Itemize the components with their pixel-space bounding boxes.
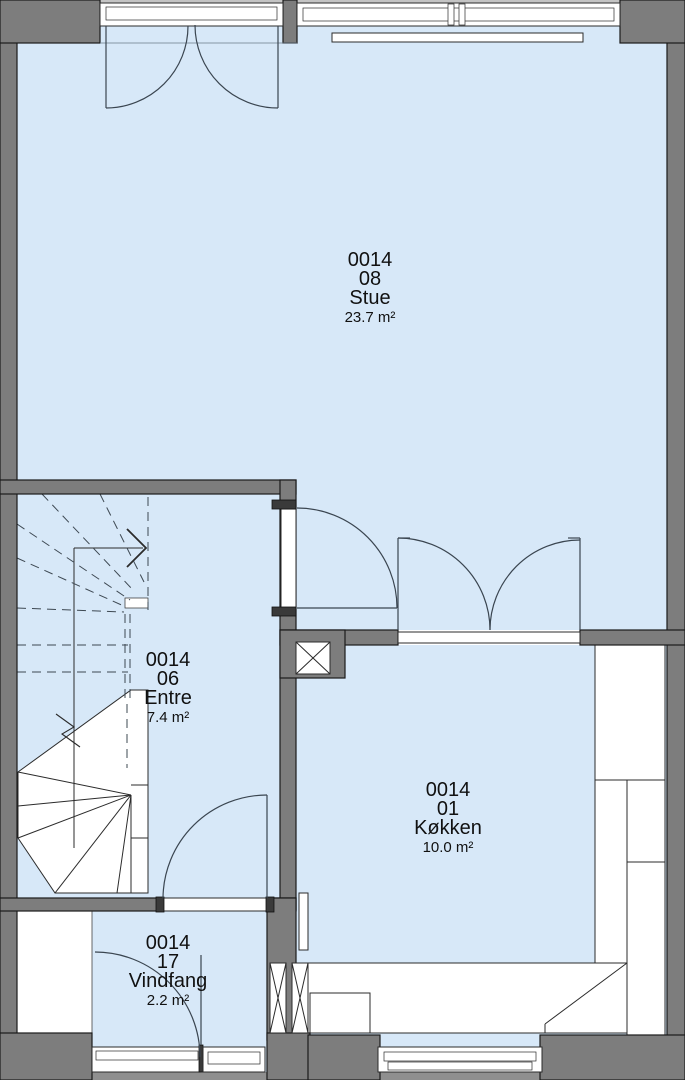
wall-left xyxy=(0,0,17,1080)
shaft-symbol xyxy=(296,642,330,674)
floors-layer xyxy=(17,26,667,1072)
wall-bottom-koekken-right xyxy=(540,1035,685,1080)
kitchen-counter-right-outer xyxy=(627,780,665,1035)
floor-plan: 0014 08 Stue 23.7 m² 0014 06 Entre 7.4 m… xyxy=(0,0,685,1080)
kitchen-tall-cabinet xyxy=(595,645,665,780)
wall-top-left-block xyxy=(0,0,100,43)
wall-top-pier xyxy=(283,0,297,43)
exterior-niche xyxy=(17,908,92,1033)
window-mullion xyxy=(448,4,454,25)
wall-bottom-left-block xyxy=(0,1033,92,1080)
wall-entre-vindfang xyxy=(0,898,160,911)
room-floor-koekken-window-sliver xyxy=(378,1035,542,1047)
window-top xyxy=(297,3,620,26)
stair-landing-edge xyxy=(125,598,148,608)
window-koekken-bottom xyxy=(378,1047,542,1072)
kitchen-appliance xyxy=(310,993,370,1033)
window-mullion xyxy=(459,4,465,25)
radiator-stue xyxy=(332,33,583,42)
wall-bottom-koekken-left xyxy=(308,1035,380,1080)
radiator-koekken xyxy=(299,893,308,950)
wall-top-right-block xyxy=(620,0,685,43)
floor-plan-drawing xyxy=(0,0,685,1080)
wall-right xyxy=(667,0,685,1080)
wall-stue-entre xyxy=(0,480,296,494)
kitchen-counter-right-inner xyxy=(595,780,627,963)
wall-bottom-mid-block xyxy=(267,1033,310,1080)
wall-stue-koekken-right xyxy=(580,630,685,645)
